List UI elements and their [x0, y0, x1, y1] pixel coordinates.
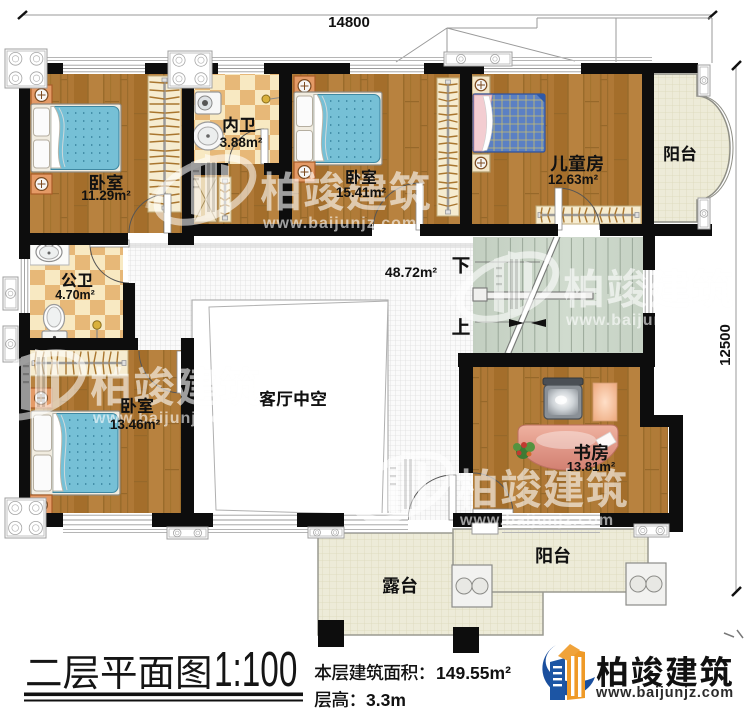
svg-text:13.81m²: 13.81m²	[567, 459, 616, 474]
svg-text:15.41m²: 15.41m²	[336, 185, 387, 200]
svg-text:3.3m: 3.3m	[366, 690, 406, 710]
svg-text:48.72m²: 48.72m²	[385, 264, 437, 280]
svg-text:12.63m²: 12.63m²	[548, 172, 599, 187]
svg-text:www.baijunjz.com: www.baijunjz.com	[595, 685, 734, 701]
svg-text:13.46m²: 13.46m²	[110, 417, 161, 432]
svg-text:149.55m²: 149.55m²	[436, 663, 511, 683]
svg-text:12500: 12500	[717, 324, 734, 366]
svg-text:14800: 14800	[328, 14, 370, 31]
svg-text:11.29m²: 11.29m²	[81, 188, 131, 203]
svg-text:4.70m²: 4.70m²	[55, 288, 95, 302]
svg-text:3.88m²: 3.88m²	[220, 135, 263, 150]
svg-text:1:100: 1:100	[214, 642, 297, 697]
